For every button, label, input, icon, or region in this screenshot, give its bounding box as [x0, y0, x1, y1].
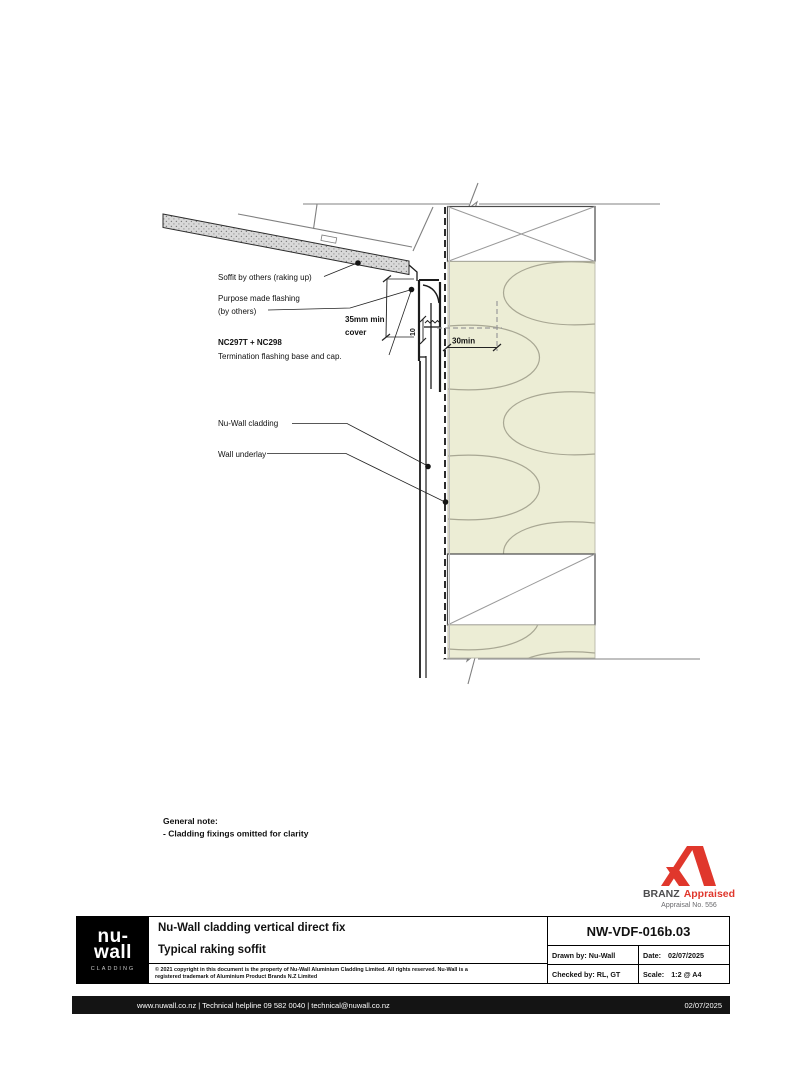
drawing-subtitle: Typical raking soffit — [158, 944, 266, 956]
drawn-by-label: Drawn by: — [552, 951, 587, 960]
label-underlay: Wall underlay — [218, 450, 266, 459]
label-cover-2: cover — [345, 328, 366, 337]
drawn-by-row: Drawn by: Nu-Wall Date:02/07/2025 — [548, 945, 729, 964]
checked-by-label: Checked by: — [552, 970, 595, 979]
general-note-item: - Cladding fixings omitted for clarity — [163, 829, 309, 839]
branz-mark-icon — [661, 846, 716, 886]
label-soffit: Soffit by others (raking up) — [218, 273, 312, 282]
branz-brand-text: BRANZ — [643, 888, 680, 900]
scale-label: Scale: — [643, 970, 664, 983]
general-note-title: General note: — [163, 816, 218, 826]
date-cell: Date:02/07/2025 — [638, 946, 729, 964]
nuwall-logo: nu- wall CLADDING — [77, 917, 149, 983]
copyright-line2: registered trademark of Aluminium Produc… — [155, 974, 541, 982]
purpose-made-flashing — [409, 265, 417, 281]
label-cladding: Nu-Wall cladding — [218, 419, 278, 428]
label-product-desc: Termination flashing base and cap. — [218, 352, 342, 361]
wall-framing — [448, 207, 596, 659]
termination-flashing — [409, 265, 440, 678]
soffit-packer — [321, 235, 337, 243]
title-block-main: Nu-Wall cladding vertical direct fix Typ… — [149, 917, 547, 983]
nuwall-logo-line2: wall — [94, 945, 132, 961]
branz-logo: BRANZAppraised Appraisal No. 556 — [643, 846, 735, 909]
checked-by-value: RL, GT — [597, 970, 621, 979]
flashing-cap-curve — [423, 285, 439, 303]
label-purpose-flashing-2: (by others) — [218, 307, 257, 316]
drawn-by-cell: Drawn by: Nu-Wall — [548, 946, 638, 964]
label-cover-1: 35mm min — [345, 315, 385, 324]
title-block-meta: NW-VDF-016b.03 Drawn by: Nu-Wall Date:02… — [547, 917, 729, 983]
drawn-by-value: Nu-Wall — [589, 951, 615, 960]
drawing-title: Nu-Wall cladding vertical direct fix — [158, 922, 345, 934]
date-value: 02/07/2025 — [668, 951, 704, 964]
branz-appraised-text: Appraised — [684, 888, 735, 900]
footer-bar: www.nuwall.co.nz | Technical helpline 09… — [72, 996, 730, 1014]
insulation-lower — [448, 625, 595, 658]
branz-appraisal-number: Appraisal No. 556 — [661, 902, 717, 909]
label-product-code: NC297T + NC298 — [218, 338, 282, 347]
checked-by-cell: Checked by: RL, GT — [548, 965, 638, 983]
checked-by-row: Checked by: RL, GT Scale:1:2 @ A4 — [548, 964, 729, 983]
label-purpose-flashing-1: Purpose made flashing — [218, 294, 300, 303]
copyright-note: © 2021 copyright in this document is the… — [149, 963, 547, 983]
scale-cell: Scale:1:2 @ A4 — [638, 965, 729, 983]
footer-contact-text: www.nuwall.co.nz | Technical helpline 09… — [137, 996, 390, 1014]
copyright-line1: © 2021 copyright in this document is the… — [155, 967, 541, 975]
scale-value: 1:2 @ A4 — [671, 970, 701, 983]
insulation-upper — [448, 262, 595, 555]
date-label: Date: — [643, 951, 661, 964]
svg-text:BRANZAppraised: BRANZAppraised — [643, 888, 735, 900]
drawing-sheet: Soffit by others (raking up) Purpose mad… — [0, 0, 800, 1080]
label-dim-10: 10 — [410, 328, 417, 336]
footer-date: 02/07/2025 — [684, 996, 722, 1014]
title-block: nu- wall CLADDING Nu-Wall cladding verti… — [76, 916, 730, 984]
serration — [425, 321, 440, 324]
general-note: General note: - Cladding fixings omitted… — [163, 816, 309, 839]
label-dim-30: 30min — [452, 337, 475, 346]
drawing-labels: Soffit by others (raking up) Purpose mad… — [218, 273, 475, 459]
nuwall-logo-sub: CLADDING — [91, 966, 135, 972]
drawing-number: NW-VDF-016b.03 — [548, 917, 729, 945]
leader-dots — [355, 260, 448, 505]
